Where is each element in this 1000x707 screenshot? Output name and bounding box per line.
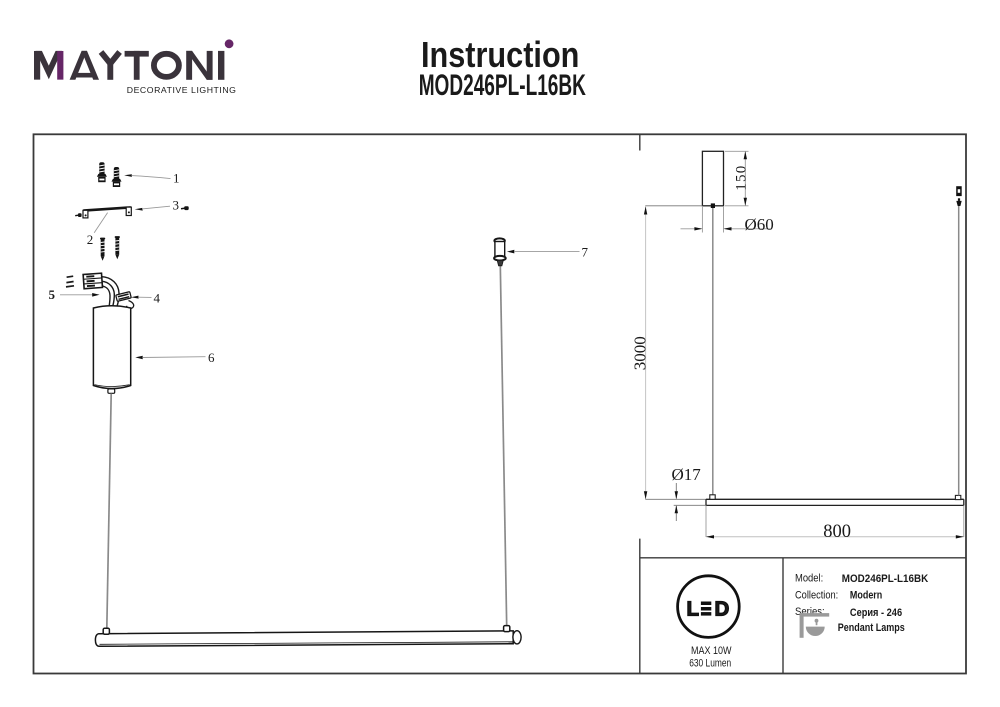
svg-text:Modern: Modern: [850, 590, 883, 602]
svg-text:Серия - 246: Серия - 246: [850, 607, 902, 619]
svg-text:4: 4: [154, 291, 161, 306]
svg-text:800: 800: [823, 522, 851, 542]
svg-text:MOD246PL-L16BK: MOD246PL-L16BK: [419, 69, 586, 102]
svg-text:1: 1: [173, 170, 180, 185]
svg-text:Ø60: Ø60: [745, 215, 774, 234]
svg-text:MOD246PL-L16BK: MOD246PL-L16BK: [842, 573, 928, 585]
svg-text:D: D: [715, 597, 730, 620]
svg-text:150: 150: [734, 164, 750, 190]
svg-text:Pendant Lamps: Pendant Lamps: [838, 622, 905, 634]
svg-text:MAX 10W: MAX 10W: [691, 645, 732, 657]
svg-text:Ø17: Ø17: [672, 465, 702, 484]
svg-text:L: L: [687, 597, 700, 620]
svg-text:7: 7: [582, 245, 589, 260]
svg-text:6: 6: [208, 350, 215, 365]
svg-text:Collection:: Collection:: [795, 590, 838, 602]
svg-text:3000: 3000: [631, 336, 650, 370]
svg-text:2: 2: [87, 232, 94, 247]
svg-text:630 Lumen: 630 Lumen: [689, 658, 731, 670]
svg-text:3: 3: [173, 197, 180, 212]
svg-text:Model:: Model:: [795, 573, 823, 585]
svg-text:DECORATIVE LIGHTING: DECORATIVE LIGHTING: [127, 85, 237, 95]
svg-text:5: 5: [49, 287, 56, 302]
